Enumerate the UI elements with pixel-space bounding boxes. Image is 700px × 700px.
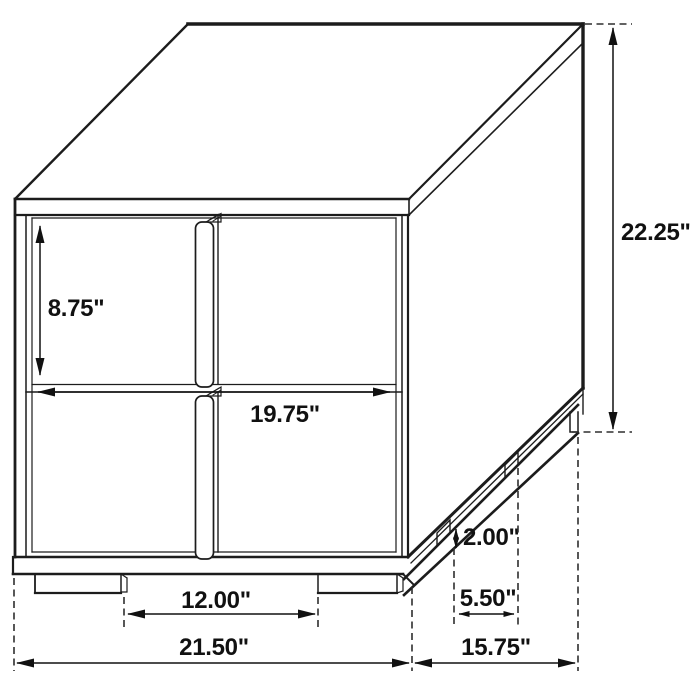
- dim-front-leg-spacing: 12.00": [124, 587, 318, 628]
- diagram-canvas: 8.75" 19.75" 22.25" 2.00" 5.50" 12.00" 2…: [0, 0, 700, 700]
- dim-label-overall-depth: 15.75": [461, 634, 531, 661]
- front-foot-left: [35, 574, 127, 593]
- drawer-handle-bottom: [196, 387, 222, 559]
- furniture-dimension-diagram: 8.75" 19.75" 22.25" 2.00" 5.50" 12.00" 2…: [0, 0, 700, 700]
- front-foot-right: [318, 574, 403, 593]
- side-foot-back: [570, 412, 578, 432]
- dim-label-front-leg-spacing: 12.00": [181, 587, 251, 614]
- dim-label-overall-width: 21.50": [179, 634, 249, 661]
- dim-label-drawer-width: 19.75": [250, 401, 320, 428]
- dim-drawer-height: 8.75": [40, 226, 104, 375]
- dim-label-base-height: 2.00": [463, 524, 520, 551]
- side-base-rail: [404, 388, 583, 595]
- cabinet-side-face: [408, 24, 583, 563]
- dim-overall-height: 22.25": [572, 24, 691, 432]
- cabinet-top-face: [15, 24, 583, 215]
- dim-label-side-leg-spacing: 5.50": [460, 585, 517, 612]
- dim-label-drawer-height: 8.75": [48, 295, 105, 322]
- base-plinth: [13, 557, 413, 584]
- drawer-handle-top: [196, 214, 222, 388]
- dim-label-overall-height: 22.25": [621, 219, 691, 246]
- dim-base-height: 2.00": [456, 524, 520, 551]
